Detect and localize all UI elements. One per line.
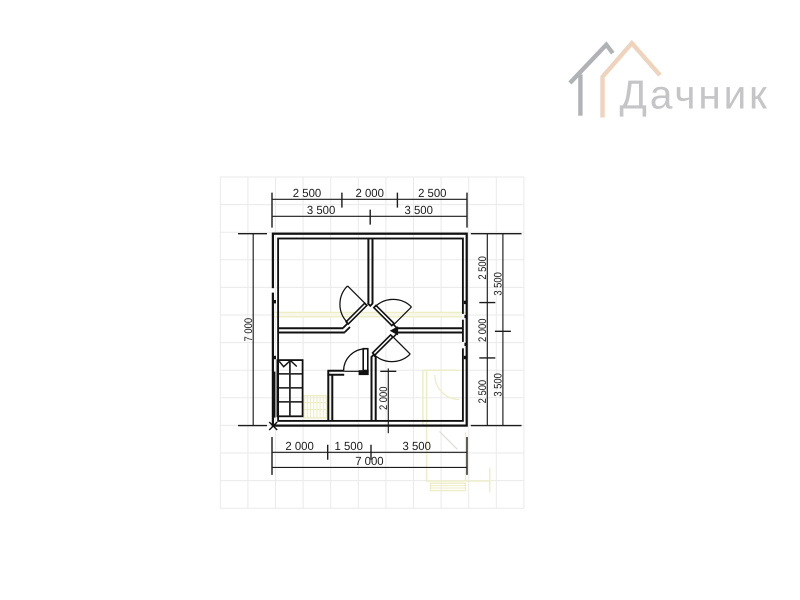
svg-text:2 000: 2 000 [477, 319, 489, 343]
svg-text:2 500: 2 500 [477, 380, 489, 404]
svg-text:2 500: 2 500 [477, 256, 489, 280]
svg-text:3 500: 3 500 [405, 203, 434, 217]
svg-text:3 500: 3 500 [403, 439, 432, 453]
svg-text:2 500: 2 500 [418, 186, 447, 200]
svg-text:7 000: 7 000 [355, 454, 384, 468]
svg-text:2 000: 2 000 [285, 439, 314, 453]
svg-text:7 000: 7 000 [243, 318, 255, 342]
svg-text:2 500: 2 500 [293, 186, 322, 200]
svg-text:2 000: 2 000 [356, 186, 385, 200]
svg-text:1 500: 1 500 [335, 439, 364, 453]
svg-text:2 000: 2 000 [378, 387, 390, 411]
svg-text:3 500: 3 500 [307, 203, 336, 217]
svg-text:Дачник: Дачник [620, 71, 770, 117]
svg-text:3 500: 3 500 [493, 373, 505, 397]
svg-text:3 500: 3 500 [493, 272, 505, 296]
